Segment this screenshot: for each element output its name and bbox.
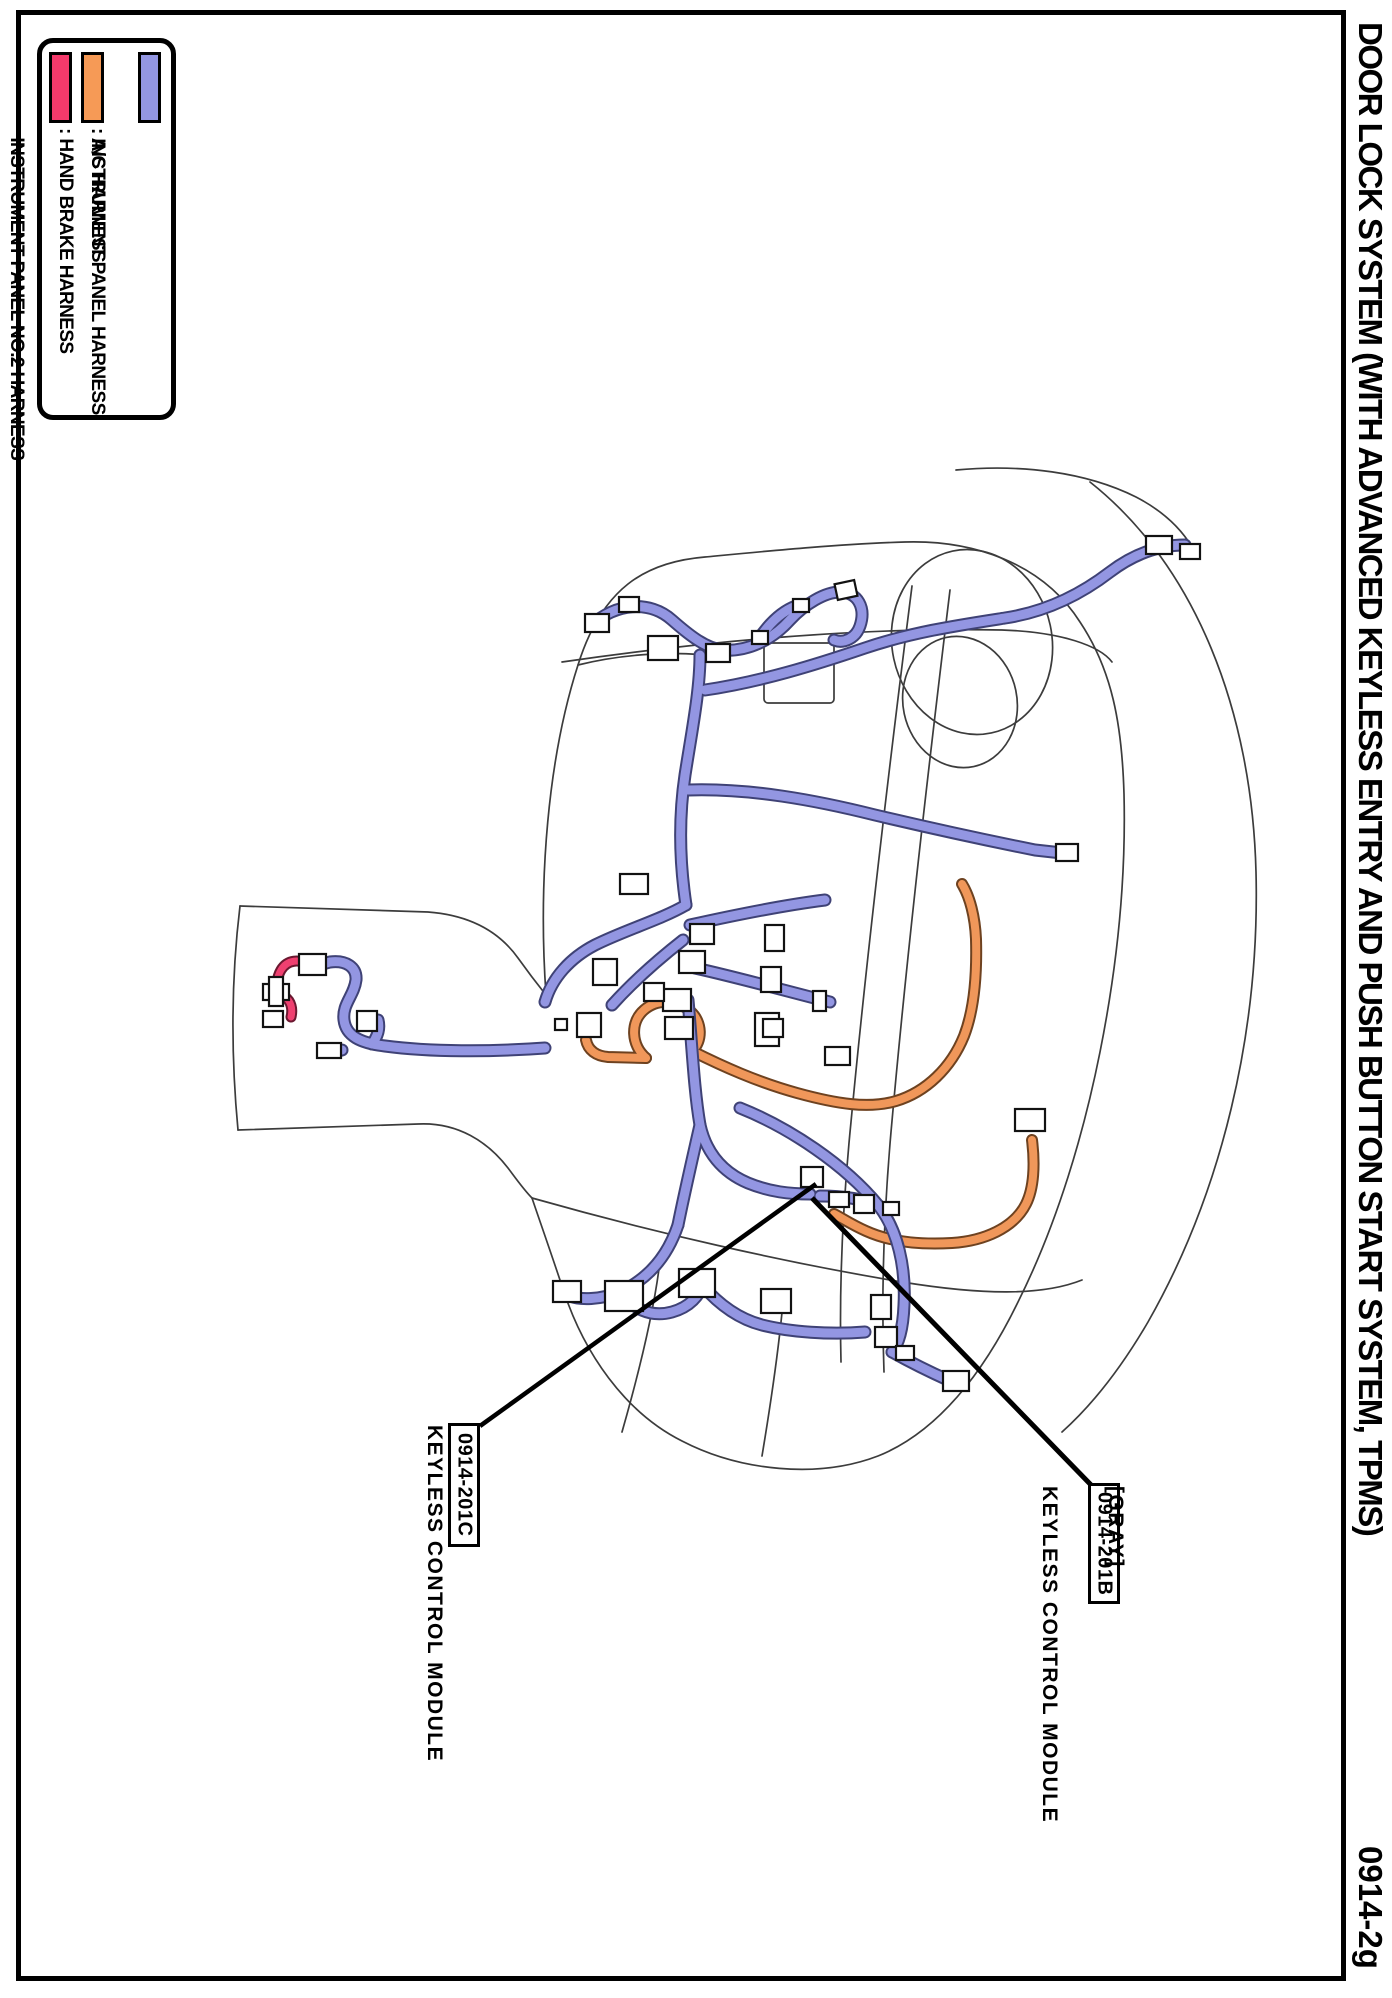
legend-line: INSTRUMENT PANEL NO.2 HARNESS	[3, 128, 30, 460]
callout-note: [GRAY]	[1104, 1486, 1126, 1823]
callout-module-label: KEYLESS CONTROL MODULE	[1038, 1486, 1060, 1823]
instrument-panel-harness-path	[315, 545, 1185, 1380]
manual-page: DOOR LOCK SYSTEM (WITH ADVANCED KEYLESS …	[0, 0, 1392, 1998]
page-code: 0914-2g	[1350, 1846, 1390, 1969]
callout-code-box-201c: 0914-201C	[448, 1423, 480, 1547]
hand-brake-harness-swatch	[49, 52, 72, 123]
hand-brake-harness-label: : HAND BRAKE HARNESS	[52, 128, 79, 354]
callout-label-201c: KEYLESS CONTROL MODULE	[420, 1425, 446, 1762]
connector-boxes	[263, 536, 1200, 1391]
wiring-diagram	[0, 0, 1392, 1998]
page-title: DOOR LOCK SYSTEM (WITH ADVANCED KEYLESS …	[1350, 22, 1390, 1535]
instrument-panel-harness-swatch	[138, 52, 161, 123]
legend-box: : INSTRUMENT PANEL HARNESS INSTRUMENT PA…	[37, 38, 176, 420]
ac-harness-label: : A/C HARNESS	[84, 128, 111, 262]
instrument-panel-harness-label: : INSTRUMENT PANEL HARNESS INSTRUMENT PA…	[111, 128, 165, 460]
ac-harness-swatch	[81, 52, 104, 123]
callout-code: 0914-201C	[453, 1433, 476, 1536]
callout-label-201b: [GRAY] KEYLESS CONTROL MODULE	[1124, 1486, 1170, 1823]
